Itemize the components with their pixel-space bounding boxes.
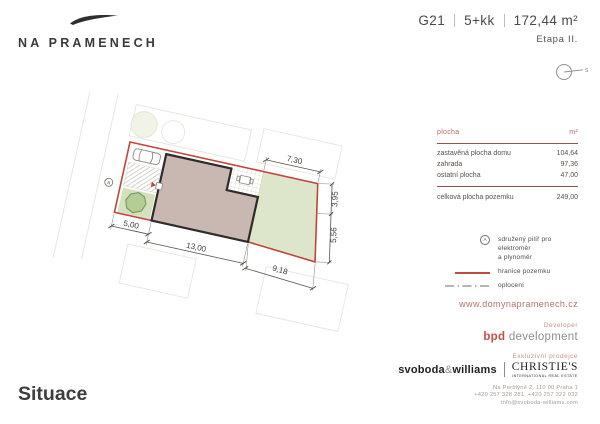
- agency-logos: svoboda&williams CHRISTIE'S INTERNATIONA…: [398, 361, 578, 378]
- developer-name-accent: bpd: [483, 331, 505, 343]
- car-icon: [132, 148, 161, 165]
- unit-line: G21 5+kk 172,44 m²: [418, 13, 578, 28]
- dim-right-lower: 5,56: [329, 227, 339, 243]
- separator: [454, 14, 455, 27]
- ghost-tree-outline: [159, 118, 186, 145]
- area-table: plocha m² zastavěná plocha domu 104,64 z…: [437, 129, 578, 203]
- seller-label: Exkluzivní prodejce: [513, 353, 579, 360]
- compass-icon: S: [550, 60, 592, 84]
- unit-code: G21: [418, 13, 445, 28]
- legend-item-fence: oplocení: [437, 281, 582, 290]
- site-plan: A: [40, 60, 420, 380]
- christies-logo: CHRISTIE'S INTERNATIONAL REAL ESTATE: [512, 361, 578, 378]
- developer-name-rest: development: [505, 331, 578, 343]
- row-value: 104,64: [557, 149, 578, 160]
- area-table-header-unit: m²: [569, 129, 578, 136]
- dim-right-upper: 3,95: [330, 191, 340, 207]
- boundary-line-icon: [455, 272, 490, 274]
- legend-label-line: oplocení: [498, 281, 524, 290]
- legend-label-line: a plynoměr: [498, 253, 582, 262]
- dim-garden-bottom: 9,18: [271, 263, 289, 276]
- address-line: +420 257 328 281, +420 257 322 032: [474, 392, 578, 399]
- table-total-row: celková plocha pozemku 249,00: [437, 186, 578, 203]
- legend: A sdružený pilíř pro elektroměr a plynom…: [437, 235, 582, 295]
- developer-label: Developer: [544, 322, 578, 329]
- brand-name: NA PRAMENECH: [18, 36, 158, 50]
- circled-a-icon: A: [437, 235, 490, 245]
- legend-label-line: sdružený pilíř pro elektroměr: [498, 235, 582, 253]
- brand-swoosh-icon: [68, 13, 120, 28]
- stage-label: Etapa II.: [418, 34, 578, 45]
- dim-house-width: 13,00: [185, 241, 207, 254]
- dash-dot-line-icon: [445, 284, 490, 288]
- separator: [504, 14, 505, 27]
- legend-item-boundary: hranice pozemku: [437, 267, 582, 276]
- total-value: 249,00: [557, 193, 578, 203]
- page-title: Situace: [18, 383, 87, 406]
- legend-item-meter-pillar: A sdružený pilíř pro elektroměr a plynom…: [437, 235, 582, 262]
- logo-divider: [504, 362, 505, 377]
- table-row: zastavěná plocha domu 104,64: [437, 149, 578, 160]
- dim-garden-top: 7,30: [286, 154, 304, 166]
- row-value: 47,00: [560, 171, 578, 182]
- brochure-page: NA PRAMENECH G21 5+kk 172,44 m² Etapa II…: [0, 0, 600, 424]
- area-table-header-label: plocha: [437, 129, 459, 136]
- table-row: zahrada 97,36: [437, 160, 578, 171]
- unit-area: 172,44 m²: [514, 13, 578, 28]
- table-row: ostatní plocha 47,00: [437, 171, 578, 182]
- address-line: info@svoboda-williams.com: [474, 400, 578, 407]
- address-line: Na Perštýně 2, 110 00 Praha 1: [474, 385, 578, 392]
- ghost-tree: [129, 109, 160, 140]
- row-label: ostatní plocha: [437, 171, 481, 182]
- row-label: zahrada: [437, 160, 462, 171]
- total-label: celková plocha pozemku: [437, 193, 514, 203]
- area-table-header: plocha m²: [437, 129, 578, 144]
- legend-label-line: hranice pozemku: [498, 267, 551, 276]
- row-label: zastavěná plocha domu: [437, 149, 511, 160]
- unit-header: G21 5+kk 172,44 m² Etapa II.: [418, 13, 578, 45]
- svoboda-williams-logo: svoboda&williams: [398, 364, 497, 376]
- unit-layout: 5+kk: [464, 13, 495, 28]
- brand-logo: NA PRAMENECH: [18, 10, 188, 52]
- developer-name: bpd development: [483, 331, 578, 343]
- row-value: 97,36: [560, 160, 578, 171]
- meter-marker: A: [104, 178, 114, 188]
- agency-address: Na Perštýně 2, 110 00 Praha 1 +420 257 3…: [474, 385, 578, 407]
- website-link[interactable]: www.domynapramenech.cz: [459, 299, 578, 309]
- compass-north-label: S: [585, 68, 589, 74]
